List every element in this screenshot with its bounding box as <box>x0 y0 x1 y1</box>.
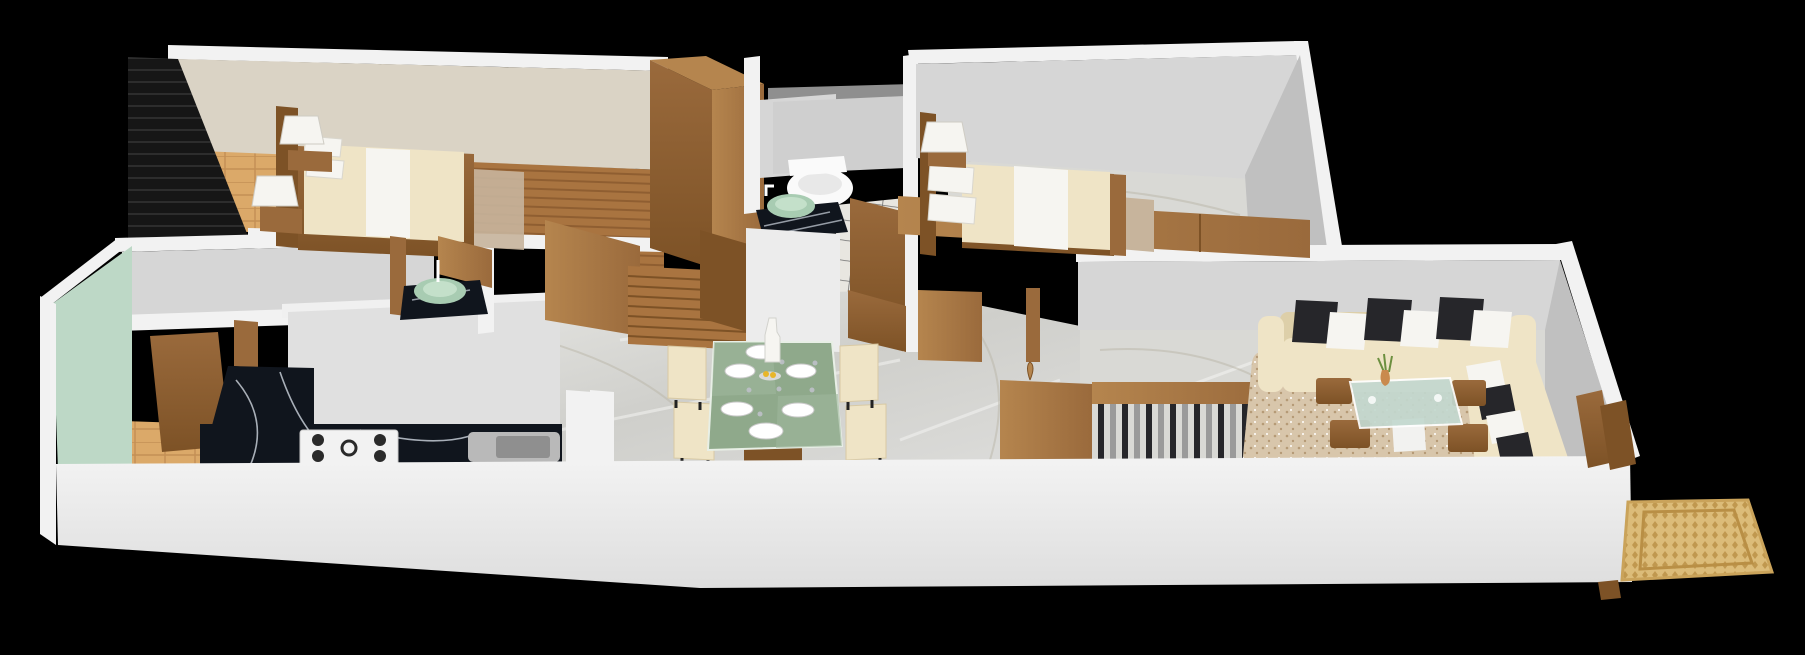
left-fascia-edge <box>40 296 56 545</box>
kitchen-wood-post <box>234 320 258 368</box>
bed1-nightstand-2 <box>260 206 302 234</box>
railing-handrail <box>1092 382 1270 404</box>
table-checker-b <box>776 394 842 448</box>
sofa-cushions <box>1292 297 1512 350</box>
dining-left-pillar <box>590 390 614 466</box>
bathroom-sink-inner <box>775 197 807 211</box>
living-room <box>1243 297 1568 470</box>
table-deco-dot-2 <box>1434 394 1442 402</box>
bed2-pillow-2 <box>928 194 976 224</box>
hall-wood-post <box>1026 288 1040 362</box>
bed2-nightstand <box>928 150 966 168</box>
bed2-runner <box>1014 166 1068 250</box>
washniche-sink-inner <box>423 281 457 297</box>
entrance-wood-foot <box>1598 580 1621 600</box>
coffee-table-glass <box>1350 378 1462 428</box>
bed2-lamp-shade <box>921 122 968 152</box>
hall-wood-door-b <box>918 290 982 362</box>
bed2-footboard <box>1110 174 1126 256</box>
floor-plan-render <box>0 0 1805 655</box>
table-deco-dot-1 <box>1368 396 1376 404</box>
bathroom-left-wall <box>744 56 760 214</box>
toilet-seat <box>798 173 842 195</box>
bed1-runner <box>366 148 410 238</box>
kitchen-dining-pillar <box>566 390 592 466</box>
sofa-arm-left <box>1258 316 1284 392</box>
stair-lower-panel <box>700 230 748 332</box>
fruit-1 <box>763 371 769 377</box>
floor-plan-stage <box>0 0 1805 655</box>
kitchen-back-wall-face <box>288 300 560 432</box>
bed1-lamp-2-shade <box>252 176 298 206</box>
bed2-pillow-1 <box>928 164 974 194</box>
kitchen-sink-basin <box>496 436 550 458</box>
bed1-lamp-1-shade <box>280 116 324 144</box>
hall-console <box>1000 380 1092 470</box>
fruit-2 <box>770 372 776 378</box>
fruit-plate <box>759 372 781 381</box>
bed1-nightstand-1 <box>288 150 332 172</box>
vanity-half-wall <box>746 228 840 352</box>
